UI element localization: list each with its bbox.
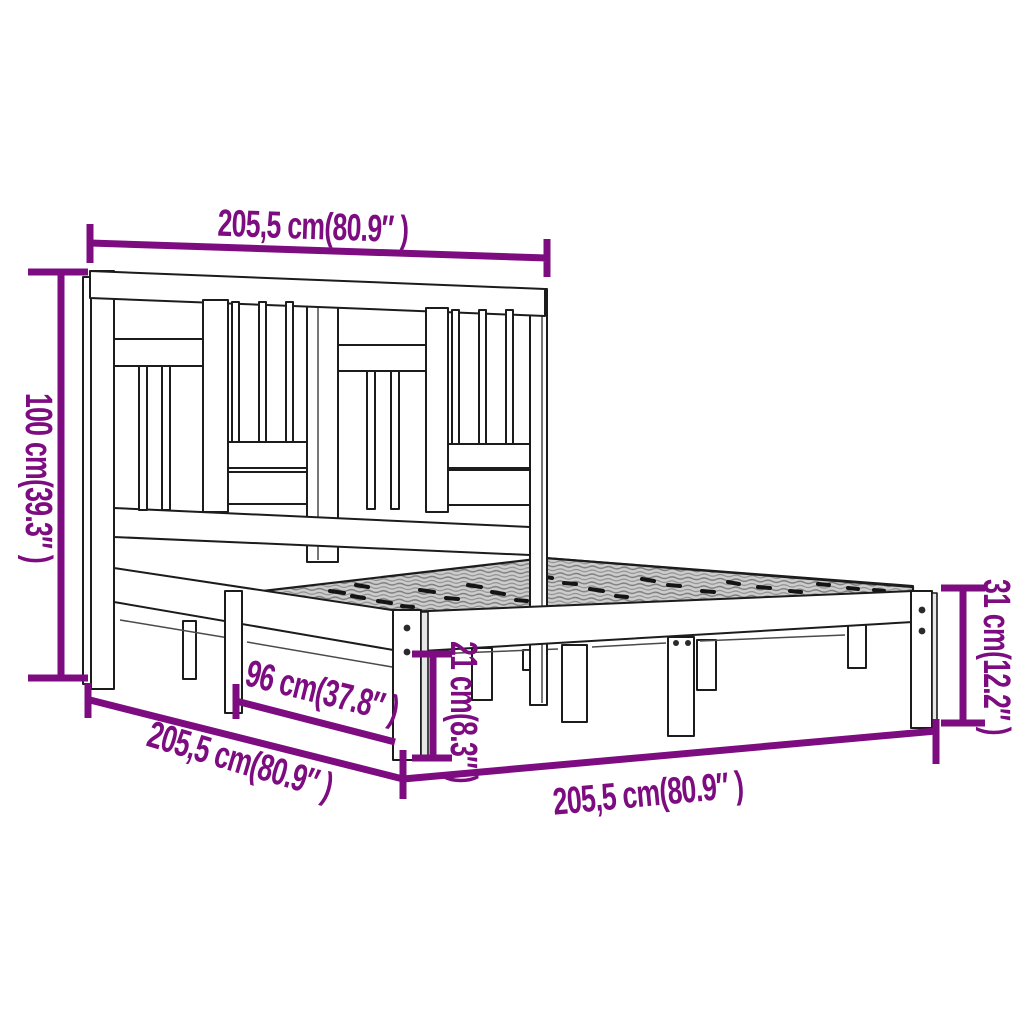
far-leg: [183, 621, 196, 679]
far-leg: [697, 640, 716, 690]
headboard-panel-right: [338, 308, 530, 512]
headboard-left-post: [91, 271, 114, 689]
label-base-height-right: 31 cm(12.2″ ): [977, 579, 1015, 735]
bed-frame-drawing: [0, 0, 1024, 1024]
headboard-panel-left: [114, 300, 307, 512]
leg-front-corner-right: [911, 591, 937, 728]
leg-front-corner-left: [393, 610, 428, 760]
label-headboard-height-left: 100 cm(39.3″ ): [19, 393, 57, 563]
dimension-diagram: 205,5 cm(80.9″ ) 100 cm(39.3″ ) 96 cm(37…: [0, 0, 1024, 1024]
leg-front-2: [668, 637, 694, 736]
headboard-back-post: [83, 277, 91, 684]
label-headboard-width-top: 205,5 cm(80.9″ ): [217, 205, 409, 250]
label-underbed-clearance: 21 cm(8.3″ ): [444, 641, 482, 783]
leg-front-1: [562, 645, 587, 722]
